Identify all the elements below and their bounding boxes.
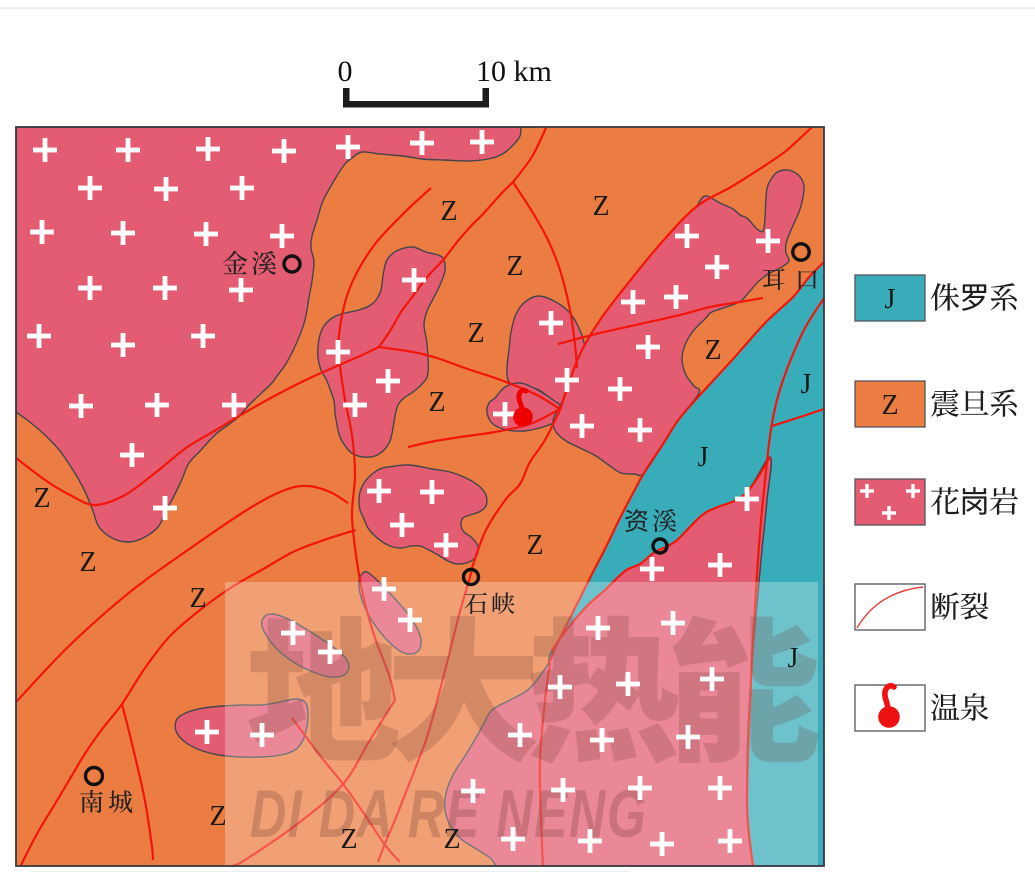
svg-text:Z: Z — [443, 824, 460, 855]
svg-text:Z: Z — [209, 801, 226, 832]
svg-text:Z: Z — [340, 824, 357, 855]
svg-text:Z: Z — [467, 318, 484, 349]
svg-text:10 km: 10 km — [476, 55, 552, 88]
svg-text:0: 0 — [338, 55, 353, 88]
svg-text:Z: Z — [881, 390, 898, 421]
svg-text:J: J — [801, 369, 812, 400]
svg-text:Z: Z — [428, 387, 445, 418]
svg-text:Z: Z — [189, 583, 206, 614]
svg-text:Z: Z — [79, 547, 96, 578]
svg-text:Z: Z — [506, 251, 523, 282]
svg-text:Z: Z — [440, 196, 457, 227]
svg-text:Z: Z — [704, 335, 721, 366]
svg-text:Z: Z — [33, 483, 50, 514]
svg-text:J: J — [788, 643, 799, 674]
svg-text:Z: Z — [592, 191, 609, 222]
svg-text:Z: Z — [526, 530, 543, 561]
svg-text:J: J — [698, 442, 709, 473]
svg-text:J: J — [885, 284, 896, 315]
